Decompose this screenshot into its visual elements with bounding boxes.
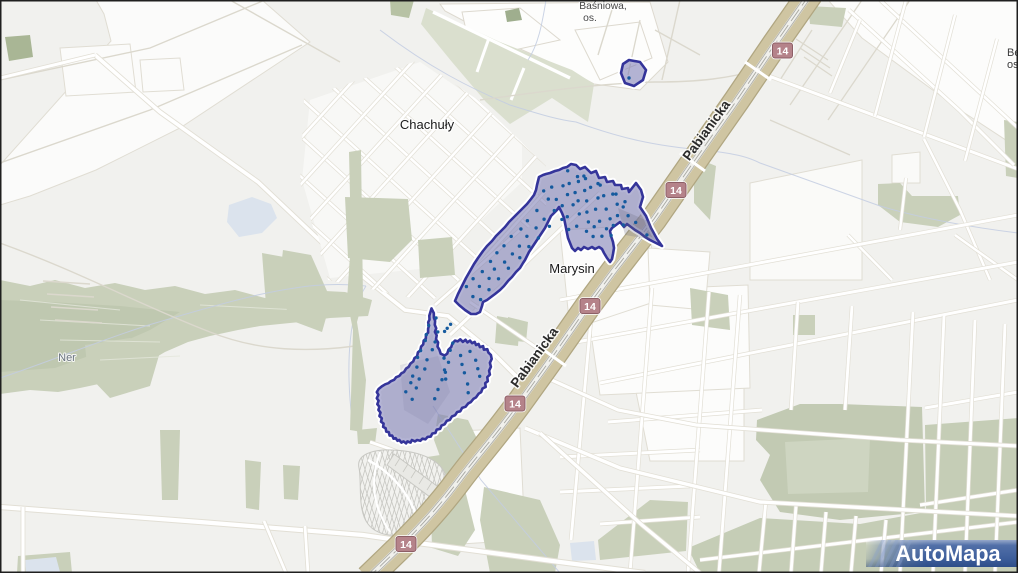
svg-text:os.: os. [583, 13, 597, 24]
svg-text:14: 14 [777, 45, 789, 57]
svg-text:14: 14 [584, 301, 596, 313]
svg-text:14: 14 [400, 539, 412, 551]
svg-text:Ner: Ner [58, 352, 76, 364]
svg-text:14: 14 [670, 185, 682, 197]
svg-text:Be: Be [1007, 47, 1018, 59]
svg-text:os: os [1007, 59, 1018, 71]
svg-text:Chachuły: Chachuły [400, 117, 455, 132]
svg-text:14: 14 [509, 398, 521, 410]
svg-text:Baśniowa,: Baśniowa, [579, 1, 627, 12]
svg-text:Marysin: Marysin [549, 261, 595, 276]
svg-text:AutoMapa: AutoMapa [895, 541, 1001, 566]
